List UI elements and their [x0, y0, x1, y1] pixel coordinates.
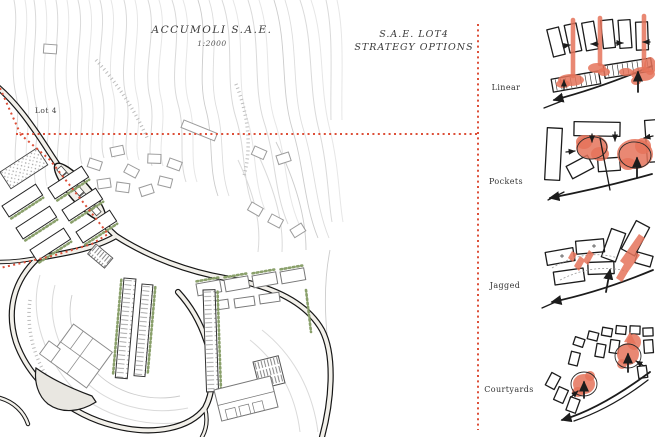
map-title: ACCUMOLI S.A.E.: [151, 24, 273, 36]
diagram-courtyards: [545, 325, 653, 421]
options-title-line1: S.A.E. LOT4: [379, 29, 449, 40]
map-scale: 1:2000: [197, 39, 226, 48]
diagram-pockets: [545, 120, 655, 200]
courtyards-red-blobs: [572, 332, 641, 397]
presentation-board: ACCUMOLI S.A.E. 1:2000 Lot 4 S.A.E. LOT4…: [0, 0, 655, 437]
options-panel-title: S.A.E. LOT4 STRATEGY OPTIONS: [354, 29, 473, 53]
diagram-jagged: [542, 221, 653, 308]
option-label-linear: Linear: [492, 83, 521, 92]
lot4-label: Lot 4: [35, 106, 57, 115]
board-svg: ACCUMOLI S.A.E. 1:2000 Lot 4 S.A.E. LOT4…: [0, 0, 655, 437]
diagram-linear: [544, 16, 655, 108]
farmhouse-building: [36, 318, 113, 410]
site-plan-map: ACCUMOLI S.A.E. 1:2000 Lot 4: [0, 0, 343, 437]
option-label-pockets: Pockets: [489, 177, 523, 186]
options-title-line2: STRATEGY OPTIONS: [354, 42, 473, 53]
option-label-jagged: Jagged: [489, 281, 520, 290]
housing-strips: [113, 278, 221, 392]
option-label-courtyards: Courtyards: [484, 385, 533, 394]
